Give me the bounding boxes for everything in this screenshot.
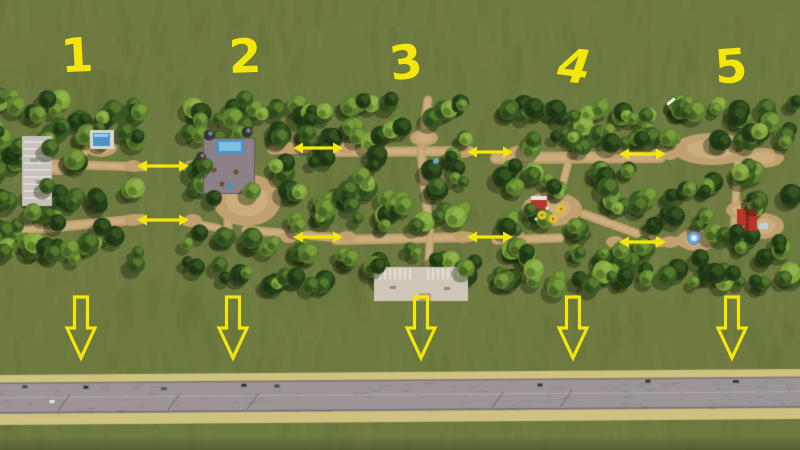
zone-label-2: 2 [228, 33, 262, 81]
zone-label-1: 1 [59, 32, 94, 81]
zone-label-3: 3 [387, 38, 425, 89]
zone-label-4: 4 [555, 42, 593, 93]
zone-label-5: 5 [713, 42, 749, 91]
game-viewport[interactable]: 1 2 3 4 5 [0, 0, 800, 450]
